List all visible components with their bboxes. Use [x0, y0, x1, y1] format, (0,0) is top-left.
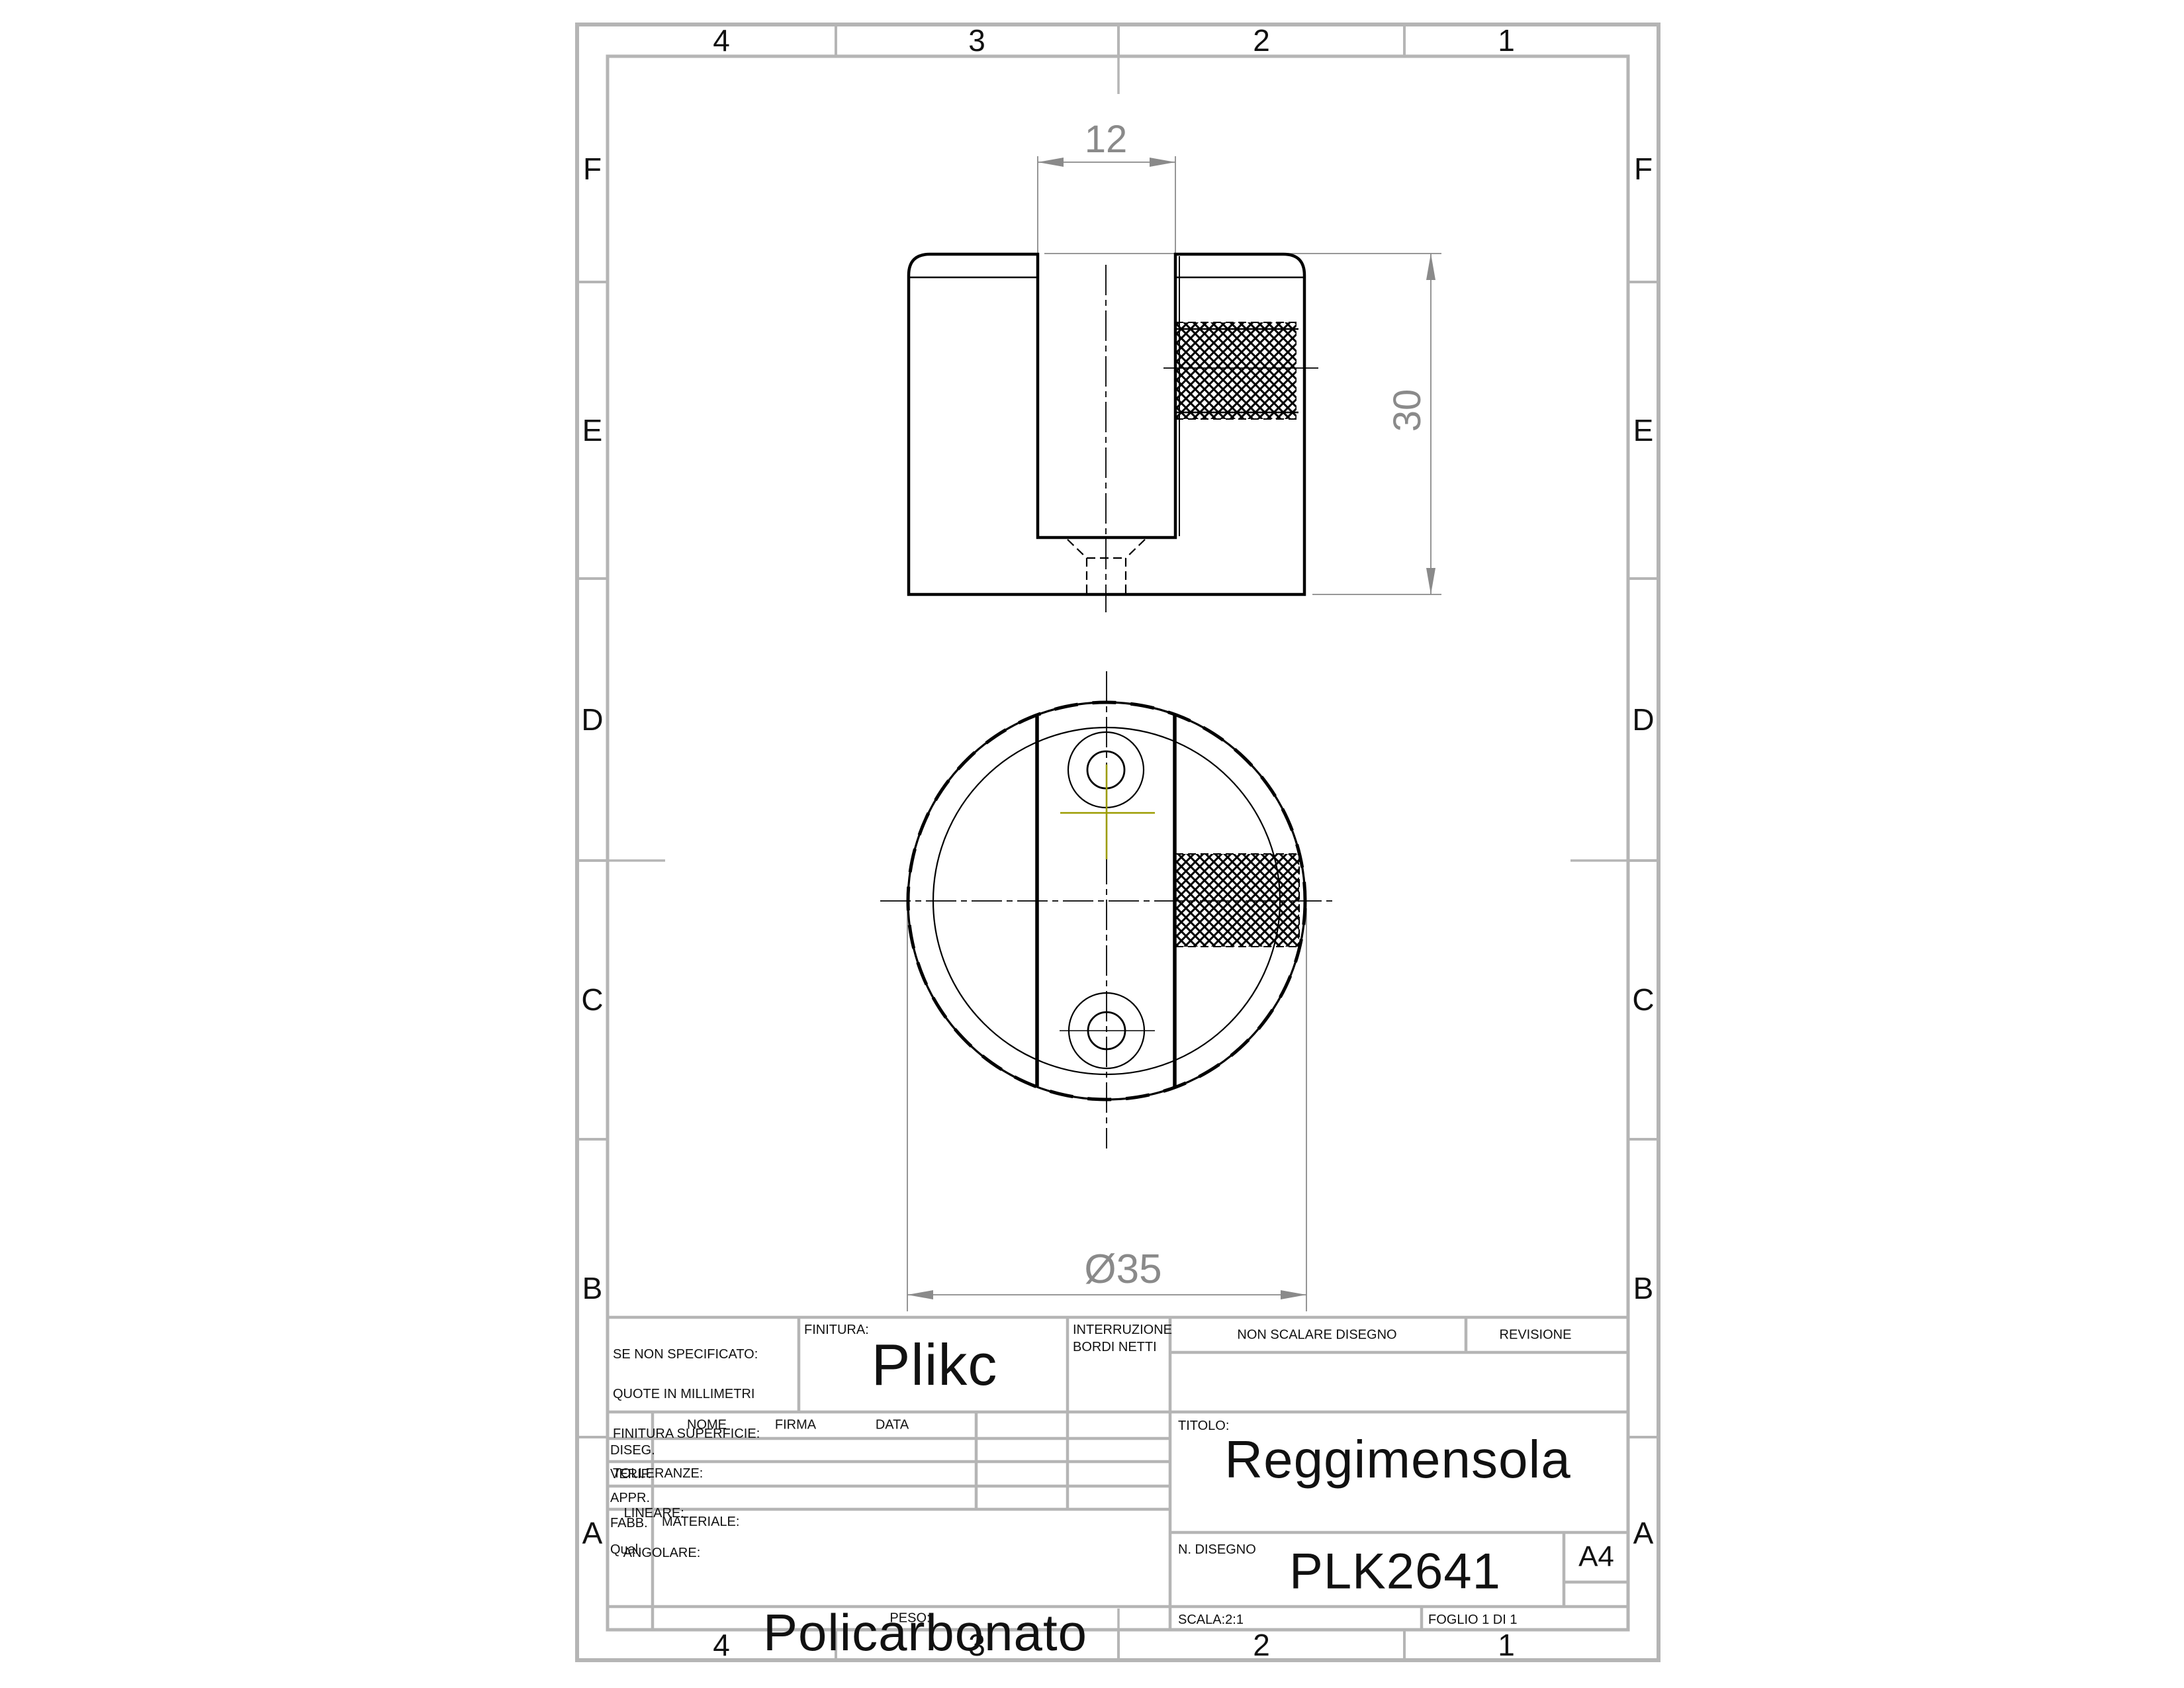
zone-col-top-4: 4 [713, 23, 730, 58]
dim12-arrow-left [1038, 158, 1064, 167]
material-label: MATERIALE: [662, 1515, 739, 1530]
drawing-sheet: 12 30 Ø35 [0, 0, 2184, 1688]
dim30-extension-lines [1044, 254, 1441, 594]
zone-ticks-left [577, 282, 608, 1437]
cad-canvas: 12 30 Ø35 [0, 0, 2184, 1688]
zone-ticks-right [1628, 282, 1659, 1437]
front-knurl-fill [1175, 322, 1297, 419]
zone-col-top-1: 1 [1498, 23, 1515, 58]
zone-col-top-2: 2 [1253, 23, 1270, 58]
row-label-checked: VERIF. [610, 1467, 651, 1482]
sheet-format: A4 [1578, 1540, 1614, 1573]
revision-label: REVISIONE [1500, 1328, 1572, 1343]
datum-cross [1060, 765, 1155, 859]
zone-row-left-a: A [582, 1515, 603, 1551]
row-label-quality: Qual. [610, 1542, 642, 1558]
scale-label: SCALA:2:1 [1178, 1613, 1244, 1628]
dia35-text: Ø35 [1084, 1246, 1161, 1292]
deburr-note-line2: BORDI NETTI [1073, 1340, 1157, 1355]
zone-row-left-c: C [581, 982, 603, 1017]
zone-row-left-d: D [581, 702, 603, 737]
zone-row-right-e: E [1633, 412, 1654, 448]
dim12-text: 12 [1085, 118, 1128, 161]
tolerance-line: SE NON SPECIFICATO: [613, 1346, 760, 1362]
inner-border [608, 56, 1628, 1630]
sheet-count-label: FOGLIO 1 DI 1 [1428, 1613, 1517, 1628]
finish-value: Plikc [872, 1331, 998, 1399]
zone-row-left-b: B [582, 1270, 603, 1306]
drawing-number-value: PLK2641 [1289, 1543, 1501, 1601]
zone-row-right-b: B [1633, 1270, 1654, 1306]
zone-col-bottom-4: 4 [713, 1627, 730, 1663]
bottom-knurl-fill [1175, 854, 1299, 947]
bottom-view [880, 671, 1337, 1149]
dim30-text: 30 [1386, 389, 1429, 432]
dia35-arrow-left [907, 1290, 933, 1299]
zone-col-top-3: 3 [968, 23, 985, 58]
row-label-manufacturing: FABB. [610, 1516, 648, 1531]
tolerance-line: QUOTE IN MILLIMETRI [613, 1386, 760, 1402]
row-label-drawn: DISEG. [610, 1443, 655, 1458]
dia35-arrow-right [1281, 1290, 1306, 1299]
front-outline [909, 254, 1304, 594]
zone-col-bottom-1: 1 [1498, 1627, 1515, 1663]
material-value: Policarbonato trasparente [763, 1513, 1087, 1688]
date-column-header: DATA [876, 1418, 909, 1433]
dim12-extension-lines [1038, 156, 1175, 267]
row-label-approved: APPR. [610, 1491, 650, 1506]
dim30-arrow-top [1426, 254, 1435, 280]
zone-row-right-d: D [1632, 702, 1654, 737]
weight-label: PESO: [889, 1611, 930, 1626]
zone-ticks-top [836, 24, 1404, 56]
do-not-scale-note: NON SCALARE DISEGNO [1237, 1328, 1396, 1343]
drawing-number-label: N. DISEGNO [1178, 1542, 1256, 1558]
zone-row-right-c: C [1632, 982, 1654, 1017]
zone-row-right-f: F [1634, 151, 1653, 187]
finish-label: FINITURA: [804, 1323, 869, 1338]
signature-column-header: FIRMA [775, 1418, 816, 1433]
front-view [909, 254, 1318, 612]
zone-row-right-a: A [1633, 1515, 1654, 1551]
part-title: Reggimensola [1224, 1429, 1570, 1490]
dim12-arrow-right [1150, 158, 1175, 167]
zone-row-left-e: E [582, 412, 603, 448]
deburr-note-line1: INTERRUZIONE [1073, 1323, 1172, 1338]
zone-row-left-f: F [583, 151, 602, 187]
title-label: TITOLO: [1178, 1419, 1229, 1434]
zone-col-bottom-2: 2 [1253, 1627, 1270, 1663]
name-column-header: NOME [687, 1418, 727, 1433]
dim30-arrow-bottom [1426, 568, 1435, 594]
